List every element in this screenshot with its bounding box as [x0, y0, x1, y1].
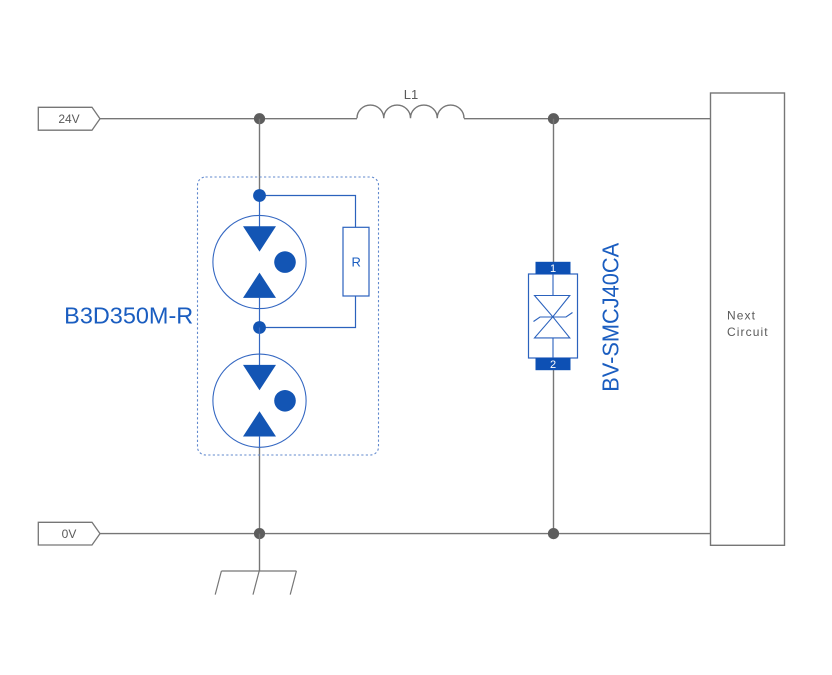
- svg-text:Next: Next: [727, 309, 756, 323]
- svg-text:1: 1: [550, 263, 556, 275]
- svg-text:0V: 0V: [62, 527, 77, 541]
- svg-text:L1: L1: [404, 87, 418, 102]
- svg-text:R: R: [352, 255, 361, 270]
- svg-text:B3D350M-R: B3D350M-R: [64, 302, 193, 328]
- svg-text:24V: 24V: [58, 112, 79, 126]
- svg-text:2: 2: [550, 359, 556, 371]
- svg-text:Circuit: Circuit: [727, 325, 769, 339]
- svg-text:BV-SMCJ40CA: BV-SMCJ40CA: [598, 242, 624, 392]
